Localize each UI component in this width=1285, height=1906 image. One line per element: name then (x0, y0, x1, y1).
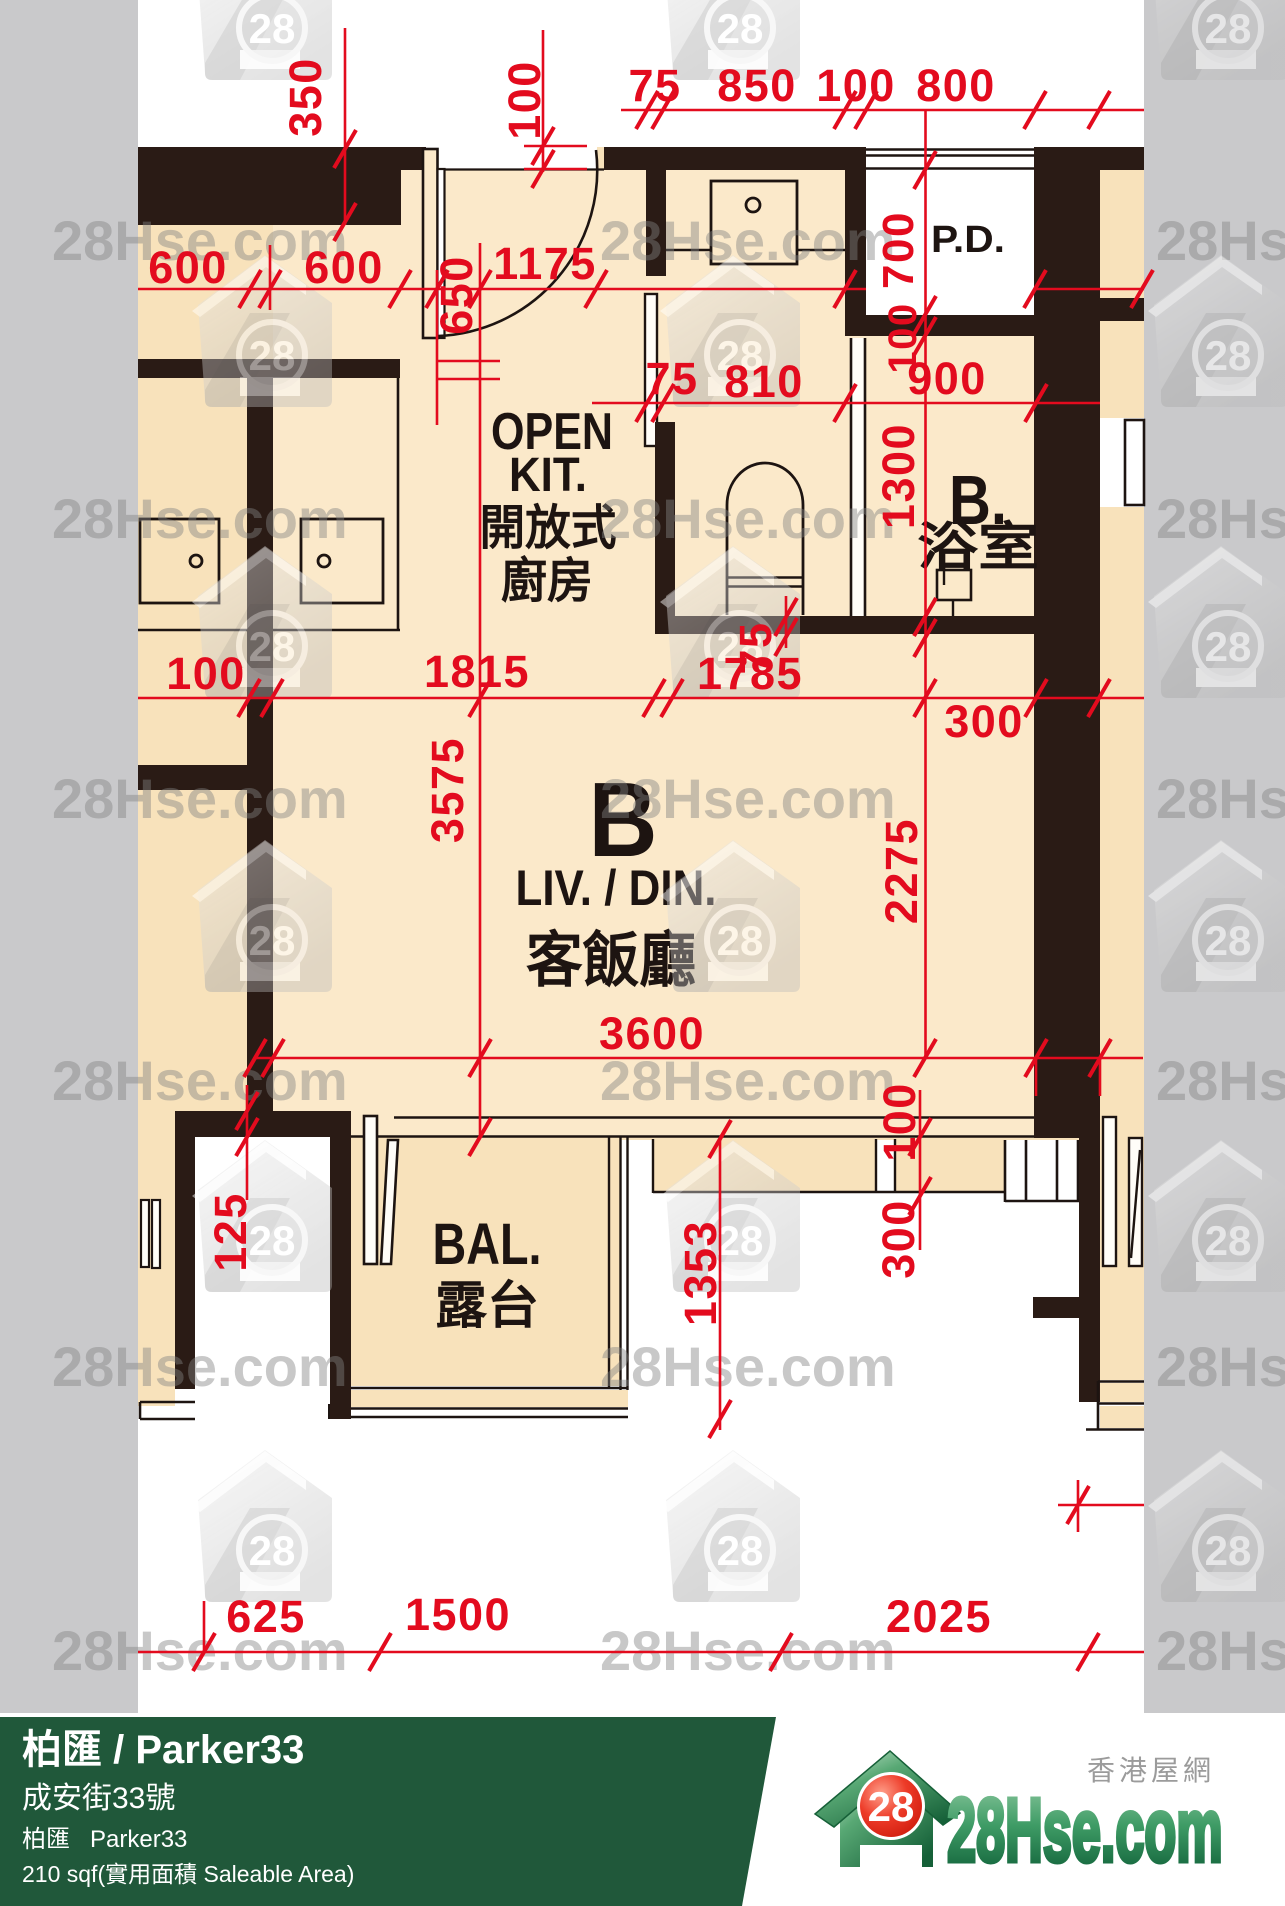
svg-text:28Hse.com: 28Hse.com (52, 487, 348, 550)
svg-text:廚房: 廚房 (501, 554, 593, 608)
svg-text:210 sqf(實用面積 Saleable Area): 210 sqf(實用面積 Saleable Area) (22, 1861, 354, 1887)
svg-text:1815: 1815 (424, 646, 530, 697)
svg-text:浴室: 浴室 (917, 519, 1039, 577)
svg-text:300: 300 (944, 696, 1024, 747)
svg-text:1300: 1300 (873, 423, 924, 529)
svg-text:28Hse.com: 28Hse.com (1156, 767, 1285, 830)
svg-text:75: 75 (628, 60, 681, 111)
svg-text:28Hse.com: 28Hse.com (600, 767, 896, 830)
svg-text:100: 100 (166, 648, 246, 699)
svg-text:28Hse.com: 28Hse.com (52, 767, 348, 830)
svg-text:600: 600 (304, 242, 384, 293)
svg-text:BAL.: BAL. (433, 1212, 542, 1277)
svg-text:開放式: 開放式 (480, 502, 617, 555)
svg-text:600: 600 (148, 242, 228, 293)
svg-text:28Hse.com: 28Hse.com (600, 1335, 896, 1398)
svg-text:28Hse.com: 28Hse.com (947, 1779, 1223, 1881)
svg-text:28Hse.com: 28Hse.com (1156, 487, 1285, 550)
svg-text:1353: 1353 (675, 1220, 726, 1326)
svg-text:125: 125 (205, 1192, 256, 1272)
svg-text:28Hse.com: 28Hse.com (600, 209, 896, 272)
svg-text:850: 850 (717, 60, 797, 111)
svg-text:350: 350 (280, 57, 331, 137)
svg-text:P.D.: P.D. (931, 219, 1005, 261)
svg-text:100: 100 (816, 60, 896, 111)
svg-text:柏匯 Parker33: 柏匯 Parker33 (22, 1826, 187, 1853)
svg-text:28Hse.com: 28Hse.com (1156, 1049, 1285, 1112)
svg-text:75: 75 (645, 353, 698, 404)
svg-text:柏匯 / Parker33: 柏匯 / Parker33 (22, 1728, 304, 1772)
svg-text:100: 100 (499, 60, 550, 140)
svg-text:800: 800 (916, 60, 996, 111)
svg-text:28Hse.com: 28Hse.com (1156, 1619, 1285, 1682)
svg-text:810: 810 (724, 356, 804, 407)
svg-text:700: 700 (874, 211, 923, 289)
svg-text:成安街33號: 成安街33號 (22, 1782, 175, 1815)
svg-text:2025: 2025 (886, 1591, 992, 1642)
svg-text:28: 28 (868, 1783, 915, 1830)
svg-text:650: 650 (431, 255, 482, 335)
svg-text:28Hse.com: 28Hse.com (52, 1335, 348, 1398)
svg-text:28Hse.com: 28Hse.com (1156, 1335, 1285, 1398)
svg-text:露台: 露台 (435, 1277, 539, 1334)
svg-text:625: 625 (226, 1591, 306, 1642)
svg-text:1785: 1785 (697, 648, 803, 699)
svg-text:1500: 1500 (405, 1589, 511, 1640)
svg-text:300: 300 (873, 1199, 924, 1279)
svg-text:28Hse.com: 28Hse.com (600, 1619, 896, 1682)
svg-text:3600: 3600 (599, 1008, 705, 1059)
svg-text:2275: 2275 (876, 818, 927, 924)
svg-text:1175: 1175 (493, 238, 597, 289)
svg-text:100: 100 (874, 1082, 925, 1162)
svg-text:100: 100 (881, 302, 925, 373)
svg-text:28Hse.com: 28Hse.com (600, 487, 896, 550)
svg-text:KIT.: KIT. (509, 449, 587, 502)
svg-text:3575: 3575 (422, 737, 473, 843)
